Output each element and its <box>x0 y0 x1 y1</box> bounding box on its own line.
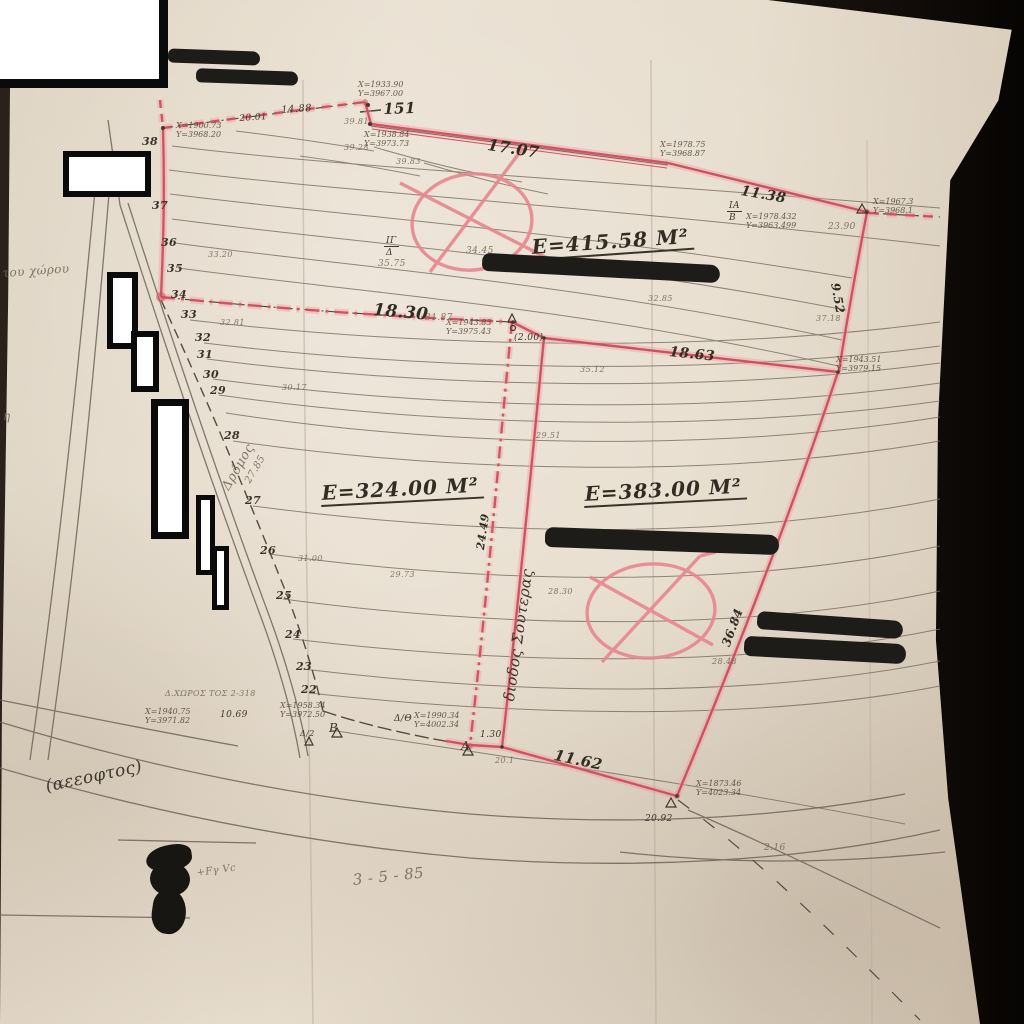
marker-redaction <box>744 636 907 664</box>
marker-redaction <box>196 68 298 86</box>
marker-redaction-signature <box>149 888 189 936</box>
marker-redaction <box>757 611 904 639</box>
redaction-box <box>63 151 151 197</box>
redaction-box <box>0 0 168 88</box>
redaction-layer <box>0 0 1024 1024</box>
redaction-box <box>151 399 189 539</box>
marker-redaction <box>545 527 780 555</box>
photo-scene: E=415.58 M²E=324.00 M²E=383.00 M²15117.0… <box>0 0 1024 1024</box>
marker-redaction <box>482 253 721 283</box>
marker-redaction <box>168 48 260 65</box>
redaction-box <box>131 331 159 392</box>
redaction-box <box>212 546 229 610</box>
